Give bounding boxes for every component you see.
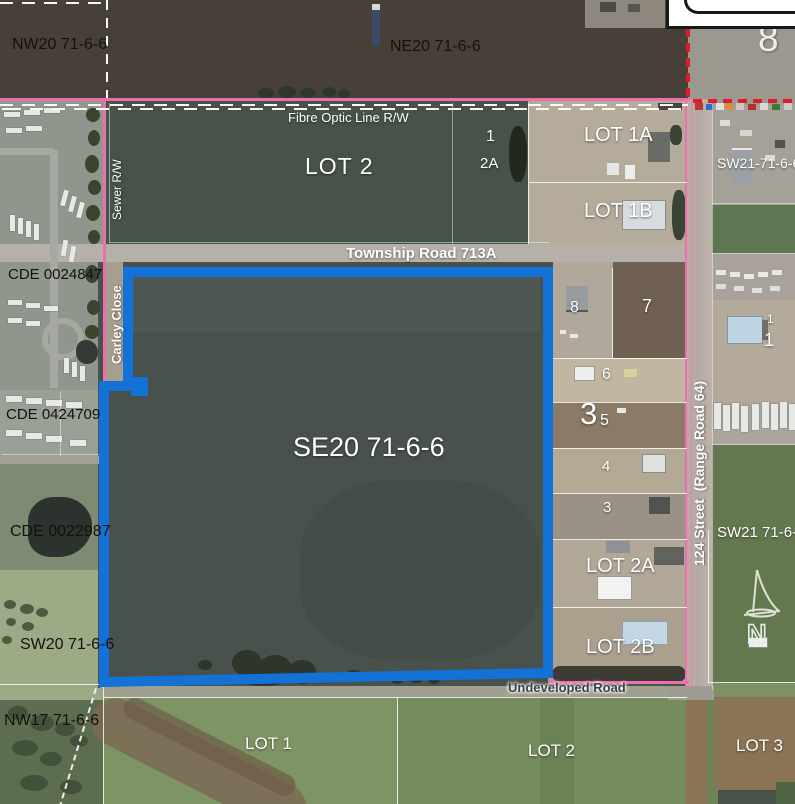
truck <box>772 270 782 275</box>
se20-light-patch <box>120 272 540 332</box>
label-undeveloped-road: Undeveloped Road <box>508 680 626 695</box>
trailer <box>72 362 77 377</box>
grain-truck <box>372 10 380 46</box>
trailer <box>10 215 15 231</box>
shed-parcel5 <box>617 408 626 413</box>
tree <box>12 740 38 756</box>
label-parcel-n5: 5 <box>600 412 609 430</box>
map-frame-curve <box>684 0 795 14</box>
parcel-line <box>109 242 549 243</box>
truck <box>748 637 768 648</box>
parcel-line <box>708 682 795 683</box>
trailer <box>26 433 42 439</box>
parcel-line <box>103 697 687 698</box>
label-lot3-south: LOT 3 <box>736 736 783 756</box>
building-lot2a-long <box>606 541 630 553</box>
truck <box>775 140 785 148</box>
tree <box>278 86 296 98</box>
parcel-line <box>712 203 795 204</box>
trailer <box>26 126 42 131</box>
tree <box>86 205 100 221</box>
parcel-line <box>712 104 713 690</box>
building-parcel6 <box>574 366 595 381</box>
building-lot1a-2 <box>607 163 619 175</box>
parcel-line <box>550 358 687 359</box>
label-lot1a: LOT 1A <box>584 124 653 147</box>
tree <box>428 675 440 684</box>
tree <box>300 88 316 98</box>
label-township-road: Township Road 713A <box>346 245 497 262</box>
grain-truck-cab <box>372 4 380 10</box>
truck <box>716 284 726 289</box>
tree <box>87 300 100 315</box>
building-parcel3 <box>649 497 670 514</box>
field-east-green <box>712 205 795 253</box>
parcel-line <box>550 493 687 494</box>
label-carley-close: Carley Close <box>109 285 124 364</box>
tree <box>198 660 212 670</box>
label-parcel-1: 1 <box>486 128 495 146</box>
trailer <box>18 218 23 234</box>
parcel-line <box>712 253 795 254</box>
tree <box>368 672 384 682</box>
storage-trailer <box>741 406 748 432</box>
tree <box>85 325 99 339</box>
truck <box>744 274 754 279</box>
trailer <box>26 221 31 237</box>
storage-trailer <box>771 404 778 430</box>
truck <box>770 286 780 291</box>
truck <box>726 104 733 110</box>
field-sw20 <box>0 570 105 700</box>
building-lot2a-white <box>597 576 632 600</box>
pond-lot2 <box>509 126 527 182</box>
truck <box>716 270 726 275</box>
trailer <box>26 321 40 326</box>
trailer <box>26 303 40 308</box>
label-sewer-rw-north: Sewer R/W <box>110 159 124 220</box>
storage-trailer <box>762 402 769 428</box>
pink-boundary <box>103 98 106 385</box>
trailer <box>44 306 58 311</box>
parcel-map: N NW20 71-6-6 NE20 71-6-6 8 Fibre Optic … <box>0 0 795 804</box>
bush <box>4 600 16 609</box>
trailer <box>8 300 22 305</box>
parcel-line <box>612 268 613 358</box>
parcel-line <box>452 103 453 244</box>
pond-small <box>76 340 98 364</box>
parcel-line <box>397 697 398 804</box>
truck <box>570 334 578 338</box>
tree <box>390 674 404 684</box>
tree <box>86 108 100 122</box>
truck <box>760 103 768 110</box>
truck <box>560 330 566 334</box>
residential-road <box>0 456 103 464</box>
se20-dark-patch <box>300 480 540 660</box>
parcel-line <box>548 607 687 608</box>
building-parcel6-2 <box>624 369 637 377</box>
parcel-4-ground <box>553 448 687 493</box>
label-lot1-south: LOT 1 <box>245 734 292 754</box>
truck <box>736 103 744 110</box>
tree <box>672 190 686 240</box>
trailer <box>70 440 86 446</box>
label-lot1b: LOT 1B <box>584 200 653 223</box>
label-lot2a: LOT 2A <box>586 555 655 578</box>
building-lot2a-dark <box>654 547 684 565</box>
parcel-line <box>0 684 99 685</box>
yard-top-center <box>585 0 665 28</box>
label-parcel-n6: 6 <box>602 366 611 384</box>
tree <box>670 125 682 145</box>
tree <box>258 88 274 98</box>
pink-boundary <box>685 98 687 687</box>
truck <box>748 104 756 110</box>
label-nw17: NW17 71-6-6 <box>4 712 99 730</box>
tree <box>288 660 316 684</box>
trailer <box>6 396 22 402</box>
fibre-optic-line <box>0 104 688 106</box>
parcel-line <box>708 530 709 683</box>
tree <box>85 155 99 173</box>
label-lot2b: LOT 2B <box>586 636 655 659</box>
label-parcel-2a: 2A <box>480 155 498 172</box>
trailer <box>80 366 85 381</box>
label-parcel-r1-small: 1 <box>767 312 774 326</box>
red-boundary-dashed <box>686 28 690 100</box>
trailer <box>6 128 22 133</box>
building-lot1a-3 <box>625 165 635 179</box>
truck <box>734 286 744 291</box>
building-parcel1-east <box>727 316 763 344</box>
storage-trailer <box>789 404 795 430</box>
trailer <box>8 318 22 323</box>
trailer <box>6 430 22 436</box>
bush <box>36 608 48 617</box>
tree <box>88 230 100 244</box>
parcel-line <box>2 454 100 455</box>
tree <box>88 180 101 195</box>
shed <box>600 2 616 12</box>
trailer <box>34 224 39 240</box>
storage-trailer <box>780 402 787 428</box>
label-lot2-north: LOT 2 <box>305 153 374 180</box>
parcel-line <box>528 103 529 244</box>
field-lot3-top <box>712 683 795 697</box>
parcel-line <box>548 539 687 540</box>
label-parcel-r1: 1 <box>764 330 774 351</box>
label-se20: SE20 71-6-6 <box>293 432 445 463</box>
truck <box>740 130 752 136</box>
trailer <box>4 112 20 117</box>
label-cde-0024847: CDE 0024847 <box>8 266 102 283</box>
truck <box>784 103 792 110</box>
parcel-line <box>103 687 104 804</box>
tree <box>88 130 100 146</box>
tree <box>322 87 336 97</box>
label-124-street: 124 Street (Range Road 64) <box>691 381 707 566</box>
trailer <box>64 358 69 373</box>
truck <box>772 104 780 110</box>
tree <box>408 672 424 683</box>
storage-trailer <box>714 403 721 429</box>
label-section-ne20: NE20 71-6-6 <box>390 38 481 56</box>
storage-trailer <box>723 405 730 431</box>
label-parcel-n3-big: 3 <box>580 396 597 432</box>
parcel-line <box>550 402 687 403</box>
parcel-line <box>550 268 551 540</box>
label-section-nw20: NW20 71-6-6 <box>12 36 107 54</box>
truck <box>730 272 740 277</box>
road-124-dirt-south <box>686 690 707 804</box>
label-cde-0424709: CDE 0424709 <box>6 406 100 423</box>
section-dashed-line <box>0 2 104 4</box>
truck <box>720 120 730 126</box>
label-sw21-upper: SW21-71-6-6 <box>717 155 795 171</box>
storage-trailer <box>732 403 739 429</box>
parcel-line <box>550 448 687 449</box>
bush <box>20 604 34 614</box>
label-parcel-n7: 7 <box>642 296 652 317</box>
trailer <box>26 398 42 404</box>
label-cde-0022987: CDE 0022987 <box>10 523 111 541</box>
label-sw20: SW20 71-6-6 <box>20 636 114 654</box>
storage-trailer <box>752 404 759 430</box>
label-parcel-n4: 4 <box>602 458 610 475</box>
label-fibre-optic: Fibre Optic Line R/W <box>288 110 409 125</box>
parcel-line <box>528 182 687 183</box>
truck <box>758 272 768 277</box>
label-parcel-n3: 3 <box>603 499 611 516</box>
label-lot2-south: LOT 2 <box>528 741 575 761</box>
truck <box>716 103 724 110</box>
tree <box>20 775 48 791</box>
bush <box>2 636 12 644</box>
shed <box>628 4 640 12</box>
label-parcel-n8: 8 <box>570 299 579 317</box>
field-lot3-corner <box>776 782 795 804</box>
tree <box>238 670 288 686</box>
bush <box>22 622 34 631</box>
residential-road <box>0 148 54 155</box>
building-parcel4 <box>642 454 666 473</box>
truck <box>695 103 703 110</box>
label-sw21-lower: SW21 71-6-6 <box>717 524 795 541</box>
parcel-line <box>712 444 795 445</box>
red-boundary-dashed <box>693 99 795 103</box>
tree <box>40 752 62 766</box>
bush <box>6 618 16 626</box>
tree <box>345 670 363 682</box>
parcel-line <box>60 392 61 456</box>
truck <box>752 288 762 293</box>
trailer <box>24 110 40 115</box>
tree <box>338 89 350 98</box>
